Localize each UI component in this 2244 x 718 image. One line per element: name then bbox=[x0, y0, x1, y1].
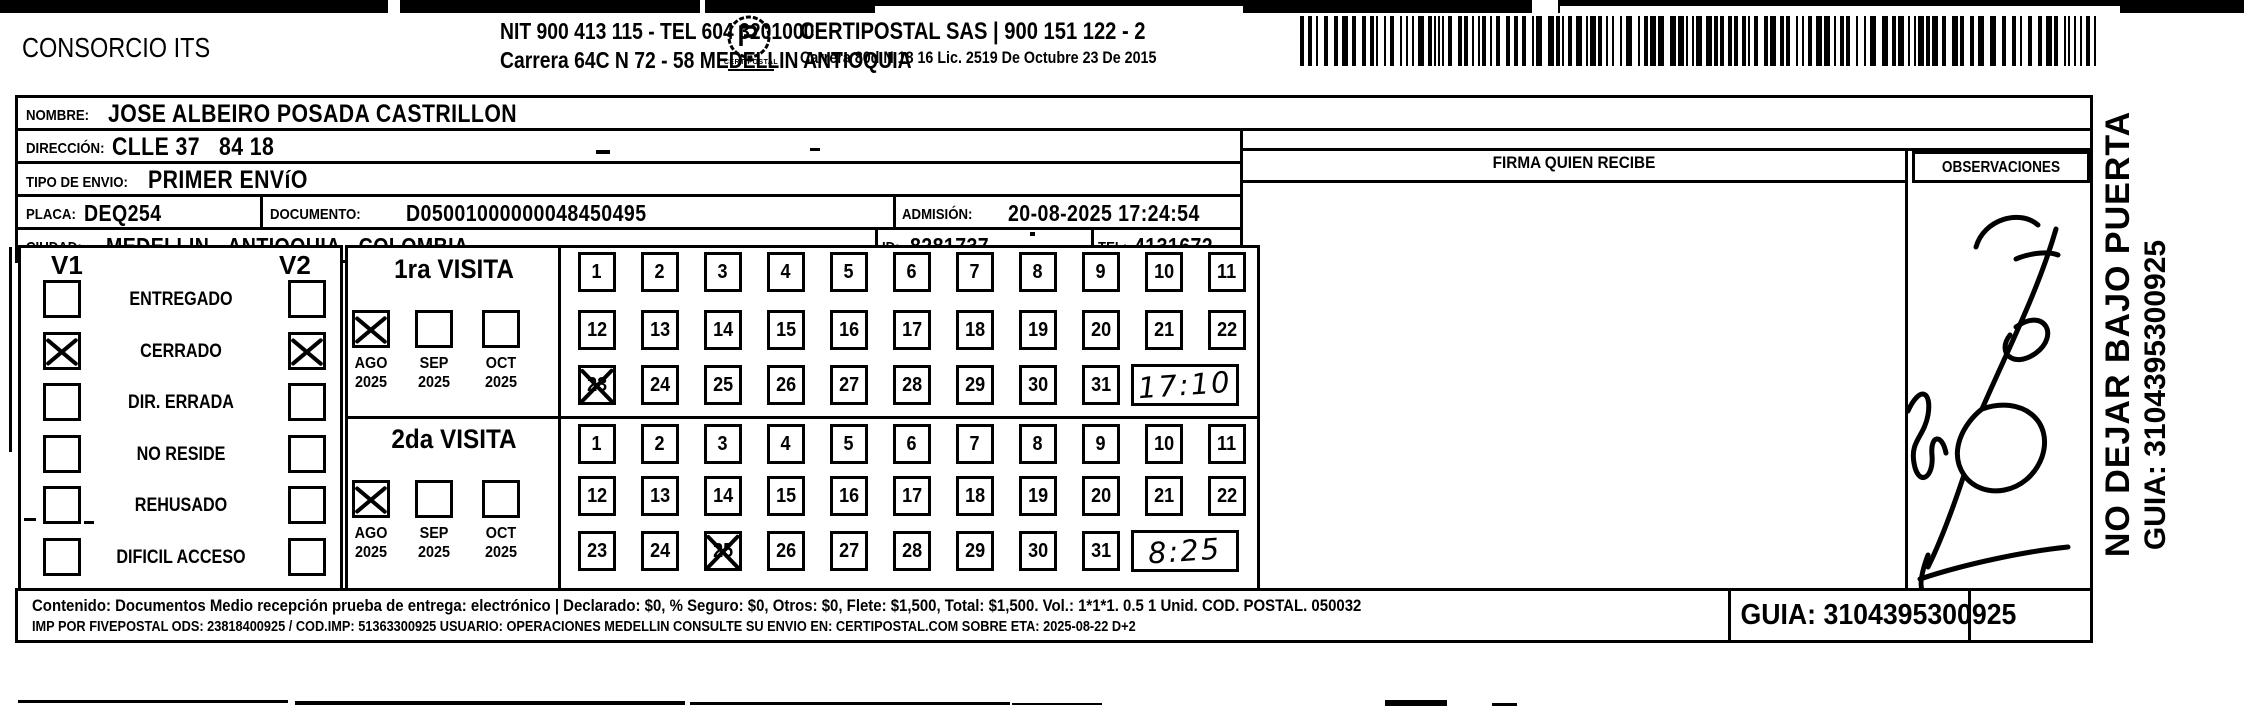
v2-checkbox-cerrado bbox=[288, 332, 326, 370]
visit2-day-cell-21: 21 bbox=[1145, 476, 1183, 516]
barcode-bar bbox=[1490, 16, 1492, 66]
visit2-day-cell-15: 15 bbox=[767, 476, 805, 516]
tipo-envio-value: PRIMER ENVíO bbox=[148, 166, 308, 195]
visit2-day-cell-20: 20 bbox=[1082, 476, 1120, 516]
guia-box-value: GUIA: 3104395300925 bbox=[1740, 599, 1958, 632]
visit2-day-cell-10: 10 bbox=[1145, 424, 1183, 464]
visit1-day-cell-15: 15 bbox=[767, 310, 805, 350]
status-box: V1 V2 ENTREGADOCERRADODIR. ERRADANO RESI… bbox=[18, 245, 343, 591]
barcode-bar bbox=[1942, 16, 1946, 66]
barcode-bar bbox=[1434, 16, 1436, 66]
visit2-day-cell-3: 3 bbox=[704, 424, 742, 464]
visit2-day-cell-31: 31 bbox=[1082, 531, 1120, 571]
visit1-day-cell-28: 28 bbox=[893, 365, 931, 405]
visit1-day-cell-20: 20 bbox=[1082, 310, 1120, 350]
barcode-bar bbox=[1840, 16, 1844, 66]
barcode-bar bbox=[1816, 16, 1822, 66]
v1-checkbox-dificil-acceso bbox=[43, 538, 81, 576]
barcode-bar bbox=[1764, 16, 1768, 66]
barcode-bar bbox=[1370, 16, 1374, 66]
visit1-day-cell-6: 6 bbox=[893, 252, 931, 292]
barcode-bar bbox=[2064, 16, 2066, 66]
v1-checkbox-cerrado bbox=[43, 332, 81, 370]
visit1-day-cell-25: 25 bbox=[704, 365, 742, 405]
v1-checkbox-no-reside bbox=[43, 435, 81, 473]
barcode-bar bbox=[1908, 16, 1910, 66]
visit1-day-cell-23: 23 bbox=[578, 365, 616, 405]
barcode-bar bbox=[1400, 16, 1402, 66]
certipostal-logo: CERTIPOSTAL bbox=[722, 14, 780, 72]
status-option-label-rehusado: REHUSADO bbox=[96, 495, 266, 517]
visit2-day-cell-13: 13 bbox=[641, 476, 679, 516]
barcode-bar bbox=[1926, 16, 1930, 66]
barcode-bar bbox=[1562, 16, 1564, 66]
direccion-label: DIRECCIÓN: bbox=[26, 140, 104, 157]
visit2-day-cell-11: 11 bbox=[1208, 424, 1246, 464]
visit1-day-cell-14: 14 bbox=[704, 310, 742, 350]
barcode-bar bbox=[1384, 16, 1386, 66]
barcode-bar bbox=[1496, 16, 1500, 66]
visit1-day-cell-8: 8 bbox=[1019, 252, 1057, 292]
visit1-day-cell-3: 3 bbox=[704, 252, 742, 292]
visit1-day-cell-13: 13 bbox=[641, 310, 679, 350]
visit2-month-label-oct: OCT2025 bbox=[477, 524, 526, 562]
barcode-bar bbox=[1846, 16, 1850, 66]
barcode-bar bbox=[1678, 16, 1684, 66]
visit2-time-handwritten: 8:25 bbox=[1147, 531, 1222, 570]
visits-box: 1ra VISITA 2da VISITA AGO2025SEP2025OCT2… bbox=[345, 245, 1260, 591]
observaciones-header: OBSERVACIONES bbox=[1928, 159, 2074, 177]
partner-line: CERTIPOSTAL SAS | 900 151 122 - 2 bbox=[800, 18, 1146, 46]
visit1-day-cell-9: 9 bbox=[1082, 252, 1120, 292]
v2-checkbox-rehusado bbox=[288, 486, 326, 524]
visit1-day-cell-19: 19 bbox=[1019, 310, 1057, 350]
status-rows: ENTREGADOCERRADODIR. ERRADANO RESIDEREHU… bbox=[21, 248, 340, 588]
barcode-bar bbox=[1796, 16, 1798, 66]
barcode-bar bbox=[1376, 16, 1378, 66]
barcode-bar bbox=[1658, 16, 1664, 66]
barcode-bar bbox=[1870, 16, 1876, 66]
placa-row: PLACA: DEQ254 DOCUMENTO: D05001000000048… bbox=[15, 194, 1243, 230]
barcode-bar bbox=[1442, 16, 1444, 66]
barcode-bar bbox=[1334, 16, 1338, 66]
barcode-bar bbox=[1548, 16, 1554, 66]
barcode-bar bbox=[1728, 16, 1732, 66]
status-option-label-dificil-acceso: DIFICIL ACCESO bbox=[96, 547, 266, 569]
visit2-day-cell-25: 25 bbox=[704, 531, 742, 571]
barcode-bar bbox=[1864, 16, 1866, 66]
barcode-bar bbox=[1748, 16, 1750, 66]
visit2-day-cell-26: 26 bbox=[767, 531, 805, 571]
tracking-barcode bbox=[1300, 16, 2112, 66]
barcode-bar bbox=[2038, 16, 2042, 66]
barcode-bar bbox=[1892, 16, 1896, 66]
barcode-bar bbox=[1308, 16, 1312, 66]
visit1-day-cell-27: 27 bbox=[830, 365, 868, 405]
barcode-bar bbox=[1514, 16, 1518, 66]
barcode-bar bbox=[1406, 16, 1408, 66]
barcode-bar bbox=[1696, 16, 1702, 66]
visit2-month-label-sep: SEP2025 bbox=[410, 524, 459, 562]
barcode-bar bbox=[1720, 16, 1724, 66]
barcode-bar bbox=[2086, 16, 2090, 66]
side-note-guia: GUIA: 3104395300925 bbox=[2139, 160, 2173, 630]
barcode-bar bbox=[2074, 16, 2076, 66]
barcode-bar bbox=[1300, 16, 1304, 66]
visit1-day-cell-7: 7 bbox=[956, 252, 994, 292]
documento-label: DOCUMENTO: bbox=[270, 206, 361, 223]
v1-checkbox-dir-errada bbox=[43, 383, 81, 421]
visit1-day-cell-5: 5 bbox=[830, 252, 868, 292]
tipo-envio-label: TIPO DE ENVIO: bbox=[26, 174, 128, 191]
barcode-bar bbox=[1914, 16, 1916, 66]
visit1-day-cell-31: 31 bbox=[1082, 365, 1120, 405]
placa-label: PLACA: bbox=[26, 206, 76, 223]
v2-checkbox-entregado bbox=[288, 280, 326, 318]
barcode-bar bbox=[1522, 16, 1526, 66]
barcode-bar bbox=[1638, 16, 1640, 66]
visit2-day-cell-14: 14 bbox=[704, 476, 742, 516]
barcode-bar bbox=[1568, 16, 1572, 66]
partner-address: Carrera 80d N 18 16 Lic. 2519 De Octubre… bbox=[800, 48, 1156, 68]
barcode-bar bbox=[1898, 16, 1904, 66]
admision-label: ADMISIÓN: bbox=[902, 206, 972, 223]
visit2-day-cell-5: 5 bbox=[830, 424, 868, 464]
visit2-month-checkbox-ago bbox=[352, 480, 390, 518]
firma-column-header: FIRMA QUIEN RECIBE bbox=[1276, 153, 1872, 173]
barcode-bar bbox=[1786, 16, 1790, 66]
observaciones-header-box: OBSERVACIONES bbox=[1912, 151, 2090, 183]
nombre-row: NOMBRE: JOSE ALBEIRO POSADA CASTRILLON bbox=[15, 95, 2093, 131]
barcode-bar bbox=[1536, 16, 1542, 66]
visit2-day-cell-24: 24 bbox=[641, 531, 679, 571]
barcode-bar bbox=[1918, 16, 1924, 66]
barcode-bar bbox=[1742, 16, 1746, 66]
barcode-bar bbox=[1324, 16, 1328, 66]
visit1-day-cell-1: 1 bbox=[578, 252, 616, 292]
barcode-bar bbox=[1472, 16, 1474, 66]
visit1-day-cell-30: 30 bbox=[1019, 365, 1057, 405]
barcode-bar bbox=[1428, 16, 1432, 66]
visit1-time-box: 17:10 bbox=[1131, 364, 1239, 406]
visit2-day-cell-12: 12 bbox=[578, 476, 616, 516]
barcode-bar bbox=[1692, 16, 1694, 66]
visit1-day-cell-22: 22 bbox=[1208, 310, 1246, 350]
barcode-bar bbox=[1970, 16, 1974, 66]
logo-caption-rule bbox=[728, 69, 774, 71]
visit2-day-cell-18: 18 bbox=[956, 476, 994, 516]
direccion-row: DIRECCIÓN: CLLE 37 84 18 bbox=[15, 128, 1243, 164]
visit2-time-box: 8:25 bbox=[1131, 530, 1239, 572]
visit2-day-cell-8: 8 bbox=[1019, 424, 1057, 464]
visit1-day-cell-11: 11 bbox=[1208, 252, 1246, 292]
barcode-bar bbox=[1438, 16, 1440, 66]
barcode-bar bbox=[1714, 16, 1718, 66]
visit2-day-cell-2: 2 bbox=[641, 424, 679, 464]
barcode-bar bbox=[2028, 16, 2032, 66]
logo-caption: CERTIPOSTAL bbox=[722, 59, 780, 66]
status-option-label-entregado: ENTREGADO bbox=[96, 289, 266, 311]
v2-checkbox-dir-errada bbox=[288, 383, 326, 421]
status-option-label-dir-errada: DIR. ERRADA bbox=[96, 392, 266, 414]
barcode-bar bbox=[1856, 16, 1858, 66]
visit2-day-cell-30: 30 bbox=[1019, 531, 1057, 571]
barcode-bar bbox=[2054, 16, 2058, 66]
visit2-day-cell-4: 4 bbox=[767, 424, 805, 464]
scanned-delivery-form: CONSORCIO ITS NIT 900 413 115 - TEL 604 … bbox=[0, 0, 2244, 718]
v1-checkbox-rehusado bbox=[43, 486, 81, 524]
signature bbox=[1898, 185, 2093, 635]
barcode-bar bbox=[2094, 16, 2096, 66]
visit1-day-cell-24: 24 bbox=[641, 365, 679, 405]
barcode-bar bbox=[2080, 16, 2082, 66]
firma-empty-area bbox=[1243, 183, 1903, 588]
visit2-day-cell-6: 6 bbox=[893, 424, 931, 464]
v2-checkbox-dificil-acceso bbox=[288, 538, 326, 576]
barcode-bar bbox=[1824, 16, 1830, 66]
visit1-day-cell-18: 18 bbox=[956, 310, 994, 350]
documento-value: D05001000000048450495 bbox=[406, 200, 647, 227]
barcode-bar bbox=[1612, 16, 1614, 66]
visit2-day-cell-17: 17 bbox=[893, 476, 931, 516]
visit2-month-checkbox-sep bbox=[415, 480, 453, 518]
v2-checkbox-no-reside bbox=[288, 435, 326, 473]
placa-value: DEQ254 bbox=[84, 200, 162, 227]
barcode-bar bbox=[1808, 16, 1812, 66]
visit1-day-cell-21: 21 bbox=[1145, 310, 1183, 350]
visit2-month-checkbox-oct bbox=[482, 480, 520, 518]
barcode-bar bbox=[1606, 16, 1608, 66]
barcode-bar bbox=[1978, 16, 1984, 66]
status-option-label-no-reside: NO RESIDE bbox=[96, 444, 266, 466]
nombre-value: JOSE ALBEIRO POSADA CASTRILLON bbox=[108, 100, 517, 129]
barcode-bar bbox=[1952, 16, 1958, 66]
visit2-day-cell-28: 28 bbox=[893, 531, 931, 571]
barcode-bar bbox=[1882, 16, 1888, 66]
barcode-bar bbox=[2046, 16, 2052, 66]
barcode-bar bbox=[1458, 16, 1462, 66]
visit1-month-label-oct: OCT2025 bbox=[477, 354, 526, 392]
company-name: CONSORCIO ITS bbox=[22, 32, 210, 64]
v1-checkbox-entregado bbox=[43, 280, 81, 318]
barcode-bar bbox=[1576, 16, 1582, 66]
visit2-day-cell-23: 23 bbox=[578, 531, 616, 571]
visit1-time-handwritten: 17:10 bbox=[1137, 365, 1233, 405]
barcode-bar bbox=[1342, 16, 1348, 66]
barcode-bar bbox=[1362, 16, 1366, 66]
side-note-no-dejar: NO DEJAR BAJO PUERTA bbox=[2099, 109, 2139, 559]
barcode-bar bbox=[1598, 16, 1602, 66]
visit1-month-checkbox-ago bbox=[352, 310, 390, 348]
barcode-bar bbox=[1686, 16, 1688, 66]
visit2-day-cell-29: 29 bbox=[956, 531, 994, 571]
footer-line1: Contenido: Documentos Medio recepción pr… bbox=[32, 596, 1361, 616]
barcode-bar bbox=[1620, 16, 1622, 66]
visit1-day-cell-4: 4 bbox=[767, 252, 805, 292]
admision-value: 20-08-2025 17:24:54 bbox=[1008, 200, 1200, 227]
visit2-day-cell-19: 19 bbox=[1019, 476, 1057, 516]
barcode-bar bbox=[1780, 16, 1784, 66]
visit1-day-cell-16: 16 bbox=[830, 310, 868, 350]
visit-area: AGO2025SEP2025OCT20251234567891011121314… bbox=[348, 248, 1257, 588]
barcode-bar bbox=[1960, 16, 1964, 66]
nombre-label: NOMBRE: bbox=[26, 107, 89, 124]
barcode-bar bbox=[1586, 16, 1588, 66]
barcode-bar bbox=[1650, 16, 1656, 66]
visit1-month-label-sep: SEP2025 bbox=[410, 354, 459, 392]
barcode-bar bbox=[1448, 16, 1452, 66]
barcode-bar bbox=[1626, 16, 1632, 66]
barcode-bar bbox=[1464, 16, 1468, 66]
barcode-bar bbox=[1754, 16, 1758, 66]
visit1-month-label-ago: AGO2025 bbox=[347, 354, 396, 392]
barcode-bar bbox=[1478, 16, 1480, 66]
footer-row: Contenido: Documentos Medio recepción pr… bbox=[15, 588, 2093, 643]
visit2-day-cell-22: 22 bbox=[1208, 476, 1246, 516]
visit2-day-cell-16: 16 bbox=[830, 476, 868, 516]
visit2-day-cell-1: 1 bbox=[578, 424, 616, 464]
visit1-day-cell-10: 10 bbox=[1145, 252, 1183, 292]
barcode-bar bbox=[2020, 16, 2022, 66]
barcode-bar bbox=[1412, 16, 1414, 66]
scan-artifact-bottom-line bbox=[18, 700, 288, 703]
barcode-bar bbox=[1932, 16, 1938, 66]
visit1-day-cell-17: 17 bbox=[893, 310, 931, 350]
barcode-bar bbox=[1482, 16, 1486, 66]
barcode-bar bbox=[1644, 16, 1648, 66]
visit2-month-label-ago: AGO2025 bbox=[347, 524, 396, 562]
barcode-bar bbox=[1670, 16, 1676, 66]
barcode-bar bbox=[2002, 16, 2006, 66]
barcode-bar bbox=[1990, 16, 1996, 66]
scan-artifact-left-line bbox=[9, 247, 12, 452]
barcode-bar bbox=[1706, 16, 1712, 66]
barcode-bar bbox=[2012, 16, 2016, 66]
direccion-value: CLLE 37 84 18 bbox=[112, 133, 274, 162]
visit2-day-cell-7: 7 bbox=[956, 424, 994, 464]
visit2-day-cell-9: 9 bbox=[1082, 424, 1120, 464]
visit1-day-cell-12: 12 bbox=[578, 310, 616, 350]
barcode-bar bbox=[1590, 16, 1596, 66]
barcode-bar bbox=[1556, 16, 1560, 66]
footer-line2: IMP POR FIVEPOSTAL ODS: 23818400925 / CO… bbox=[32, 619, 1136, 635]
visit1-day-cell-2: 2 bbox=[641, 252, 679, 292]
status-option-label-cerrado: CERRADO bbox=[96, 341, 266, 363]
visit1-month-checkbox-oct bbox=[482, 310, 520, 348]
barcode-bar bbox=[2068, 16, 2070, 66]
barcode-bar bbox=[1734, 16, 1738, 66]
barcode-bar bbox=[1532, 16, 1534, 66]
visit1-day-cell-26: 26 bbox=[767, 365, 805, 405]
barcode-bar bbox=[1316, 16, 1318, 66]
visit1-day-cell-29: 29 bbox=[956, 365, 994, 405]
barcode-bar bbox=[1390, 16, 1394, 66]
barcode-bar bbox=[1834, 16, 1836, 66]
barcode-bar bbox=[1352, 16, 1356, 66]
visit1-month-checkbox-sep bbox=[415, 310, 453, 348]
barcode-bar bbox=[1506, 16, 1510, 66]
visit2-day-cell-27: 27 bbox=[830, 531, 868, 571]
tipo-envio-row: TIPO DE ENVIO: PRIMER ENVíO bbox=[15, 161, 1243, 197]
barcode-bar bbox=[1418, 16, 1424, 66]
barcode-bar bbox=[1802, 16, 1804, 66]
barcode-bar bbox=[1770, 16, 1776, 66]
